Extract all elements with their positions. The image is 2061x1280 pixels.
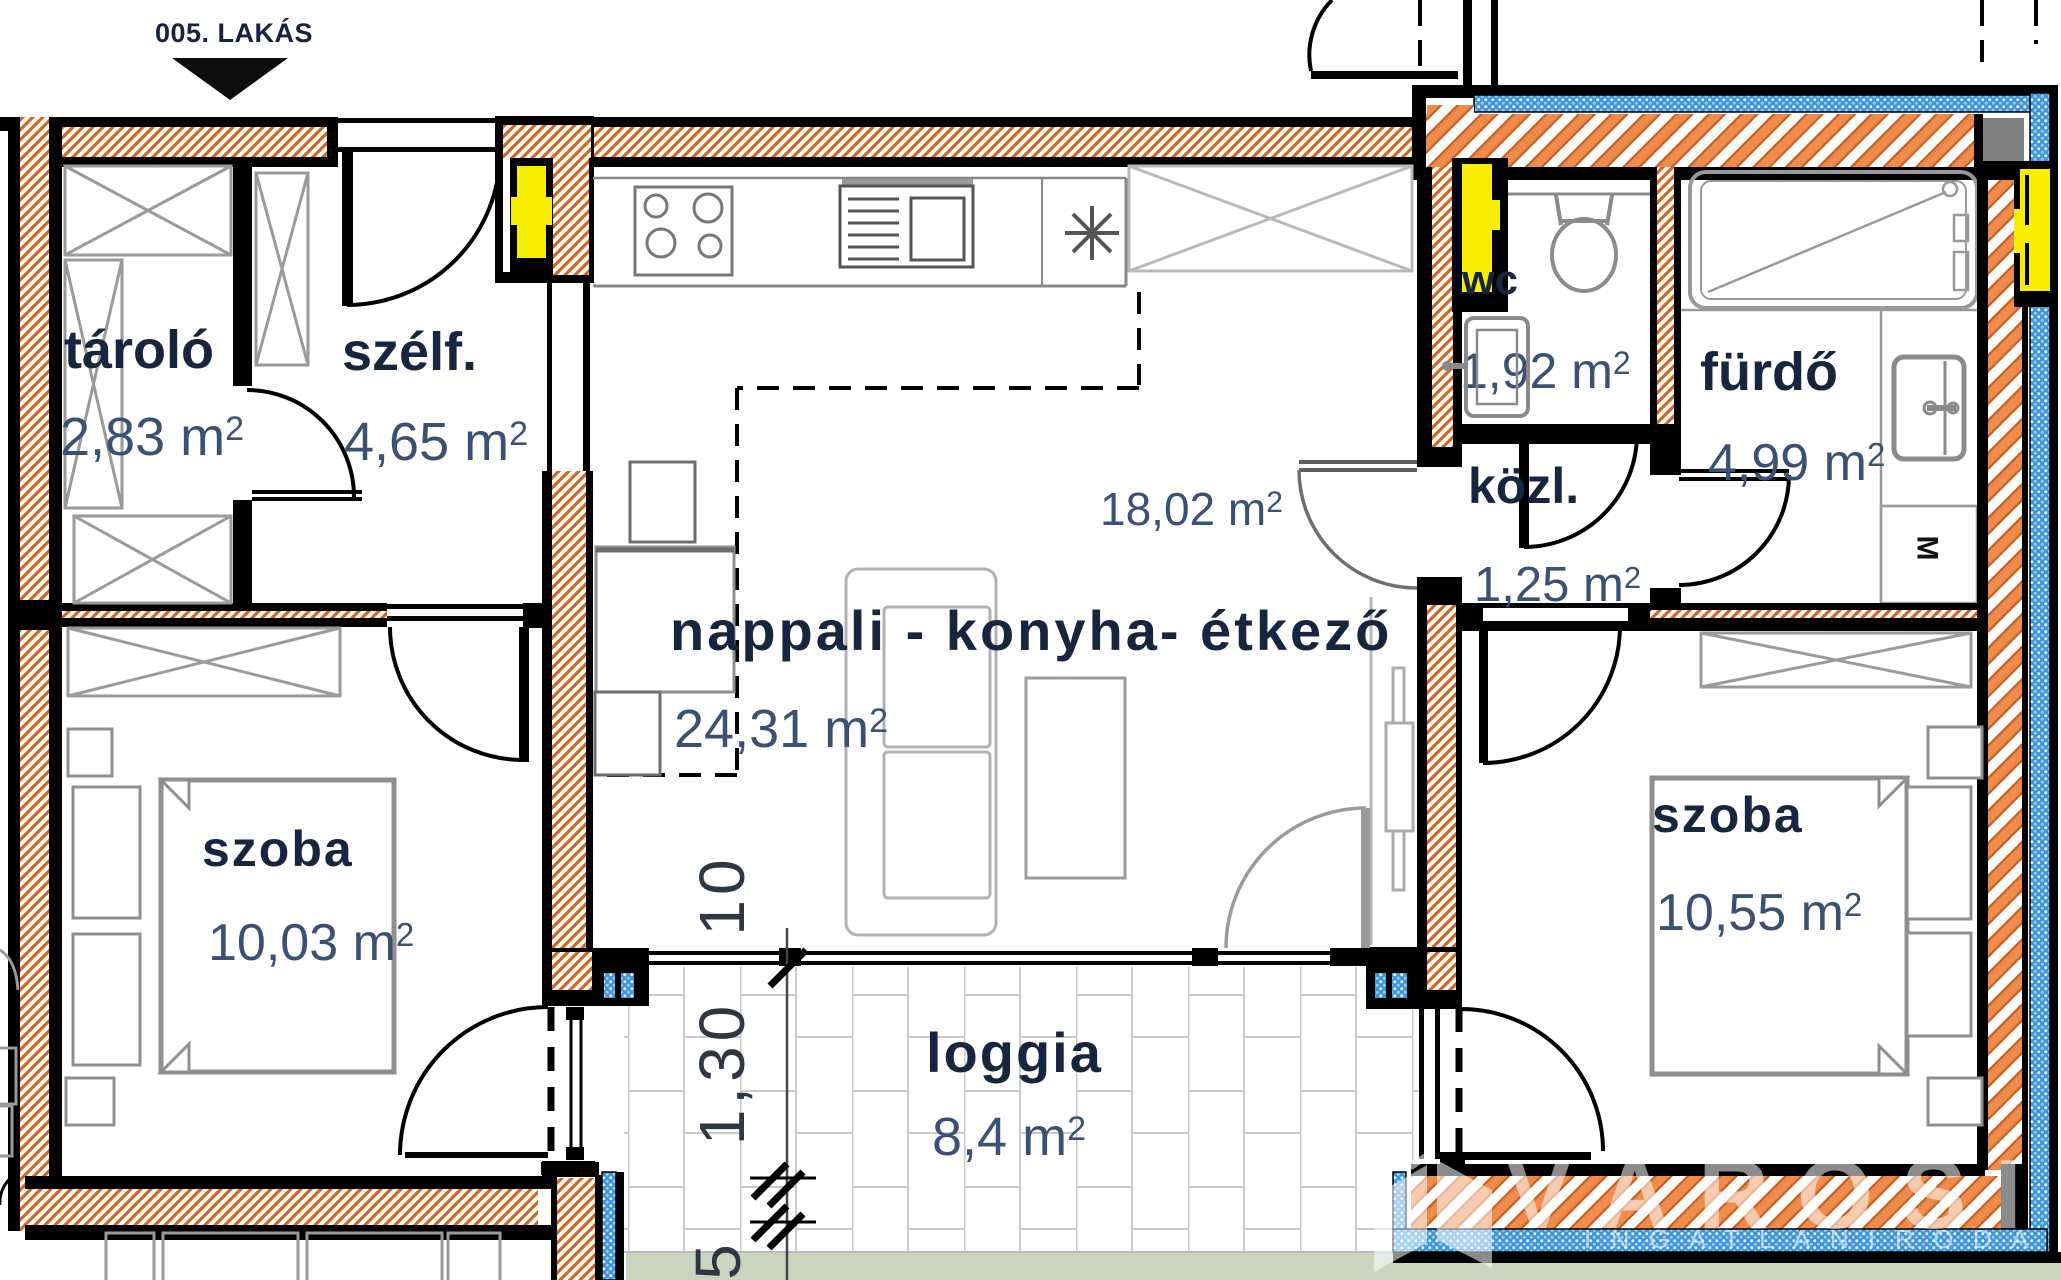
svg-text:szélf.: szélf. [342, 322, 477, 382]
svg-text:18,02 m2: 18,02 m2 [1100, 483, 1283, 535]
svg-text:wc: wc [1461, 256, 1518, 303]
svg-text:4,99 m2: 4,99 m2 [1708, 434, 1885, 492]
svg-text:4: 4 [0, 384, 5, 395]
svg-text:3: 3 [0, 677, 5, 688]
svg-text:8: 8 [0, 731, 5, 742]
svg-text:1,92 m2: 1,92 m2 [1460, 343, 1631, 399]
svg-text:INGATLANIRODA: INGATLANIRODA [1584, 1224, 2048, 1254]
svg-text:10: 10 [686, 854, 758, 935]
svg-text:24,31 m2: 24,31 m2 [674, 699, 888, 759]
svg-text:1: 1 [0, 486, 5, 497]
svg-text:fürdő: fürdő [1700, 342, 1838, 402]
svg-text:2: 2 [0, 434, 5, 445]
svg-text:7: 7 [0, 247, 5, 258]
svg-text:1,30: 1,30 [686, 1001, 758, 1146]
svg-text:10,03 m2: 10,03 m2 [208, 914, 414, 972]
svg-text:6: 6 [0, 541, 5, 552]
svg-text:szoba: szoba [1652, 787, 1804, 843]
svg-text:szoba: szoba [202, 821, 354, 877]
svg-text:nappali - konyha- étkező: nappali - konyha- étkező [670, 599, 1392, 662]
svg-text:4,65 m2: 4,65 m2 [344, 412, 528, 472]
svg-text:8: 8 [0, 203, 5, 214]
svg-text:005. LAKÁS: 005. LAKÁS [155, 17, 313, 48]
svg-text:5: 5 [682, 1244, 754, 1280]
svg-text:8,4 m2: 8,4 m2 [932, 1107, 1086, 1167]
svg-text:M: M [1911, 536, 1944, 561]
svg-text:közl.: közl. [1468, 458, 1579, 514]
svg-text:tároló: tároló [64, 320, 214, 380]
svg-text:loggia: loggia [926, 1021, 1103, 1084]
svg-text:1,25 m2: 1,25 m2 [1474, 558, 1641, 612]
svg-text:2,83 m2: 2,83 m2 [60, 407, 244, 467]
svg-text:9: 9 [0, 614, 5, 625]
svg-text:5: 5 [0, 319, 5, 330]
svg-text:10,55 m2: 10,55 m2 [1656, 884, 1862, 942]
